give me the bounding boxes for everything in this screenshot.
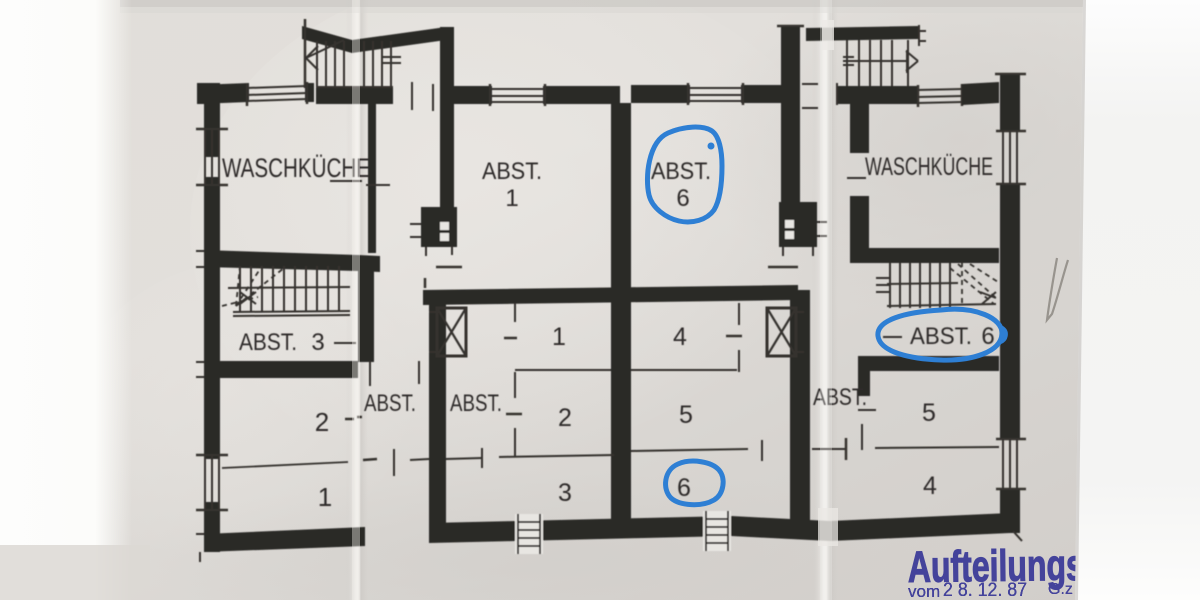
svg-text:1: 1 bbox=[552, 323, 566, 351]
svg-text:6: 6 bbox=[676, 185, 689, 212]
svg-text:ABST.: ABST. bbox=[239, 329, 297, 356]
svg-text:3: 3 bbox=[311, 329, 324, 356]
svg-text:ABST.: ABST. bbox=[482, 158, 542, 185]
svg-text:G.z: G.z bbox=[1048, 581, 1073, 598]
svg-text:ABST.: ABST. bbox=[910, 323, 972, 350]
svg-text:WASCHKÜCHE: WASCHKÜCHE bbox=[865, 153, 993, 181]
svg-text:5: 5 bbox=[679, 401, 693, 429]
svg-text:4: 4 bbox=[673, 323, 687, 351]
svg-text:1: 1 bbox=[505, 185, 518, 212]
svg-text:ABST.: ABST. bbox=[364, 390, 416, 417]
svg-text:3: 3 bbox=[558, 479, 572, 507]
svg-text:4: 4 bbox=[923, 472, 937, 500]
svg-text:5: 5 bbox=[922, 399, 936, 427]
svg-text:WASCHKÜCHE: WASCHKÜCHE bbox=[222, 153, 370, 183]
svg-text:2: 2 bbox=[558, 404, 572, 432]
svg-text:1: 1 bbox=[318, 482, 332, 512]
svg-text:2: 2 bbox=[315, 407, 329, 437]
svg-text:ABST.: ABST. bbox=[450, 390, 502, 417]
svg-text:6: 6 bbox=[677, 474, 691, 502]
svg-text:2 8. 12. 87: 2 8. 12. 87 bbox=[943, 580, 1027, 600]
svg-text:vom: vom bbox=[908, 582, 940, 600]
svg-text:ABST.: ABST. bbox=[651, 158, 711, 185]
